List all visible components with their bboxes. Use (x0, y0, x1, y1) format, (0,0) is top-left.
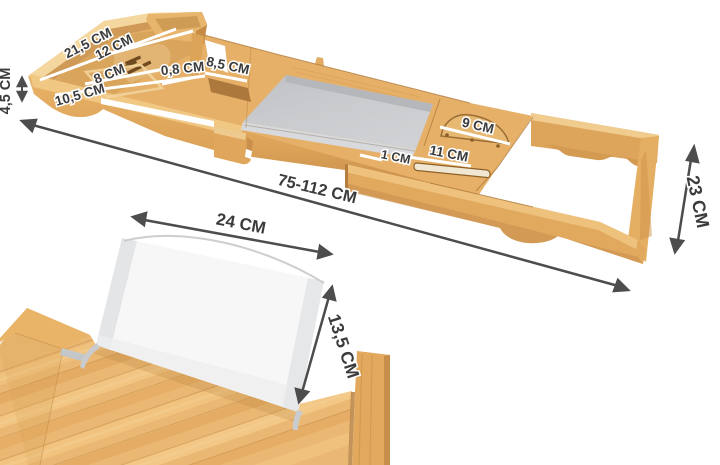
svg-text:4,5 CM: 4,5 CM (0, 68, 14, 115)
svg-text:23 CM: 23 CM (683, 174, 714, 230)
svg-text:13,5 CM: 13,5 CM (324, 312, 363, 381)
